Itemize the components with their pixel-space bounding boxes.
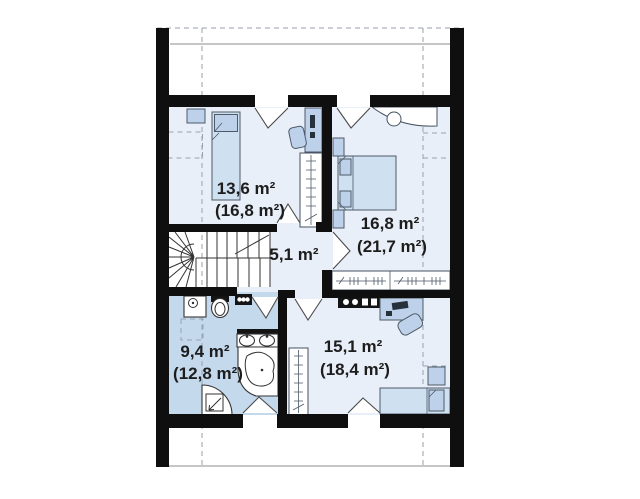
wall-stairs-bathroom [156, 287, 237, 296]
desk [305, 108, 322, 152]
double-bed [338, 156, 396, 210]
floor-plan-page: 13,6 m² (16,8 m²) 16,8 m² (21,7 m²) 5,1 … [0, 0, 640, 499]
wardrobe [332, 271, 450, 290]
room-gross-area-label: (12,8 m²) [173, 364, 243, 384]
wall-bottom-a [156, 414, 243, 428]
wall-middle-upper [322, 107, 332, 232]
wall-top-c [370, 95, 464, 107]
radiator [235, 294, 252, 305]
corner-bathtub [238, 347, 278, 396]
wardrobe [300, 153, 322, 227]
wall-top-b [288, 95, 337, 107]
wall-bottom-c [380, 414, 464, 428]
room-area-label: 5,1 m² [269, 245, 318, 265]
toilet [211, 296, 229, 318]
wall-top-a [156, 95, 255, 107]
wall-bathroom-right [278, 290, 287, 415]
desk-chair [387, 112, 401, 126]
desk-monitor [310, 115, 315, 128]
pillow [340, 191, 351, 207]
floor-plan-drawing [0, 0, 640, 499]
room-area-label: 9,4 m² [180, 342, 229, 362]
desk-item [386, 311, 392, 316]
desk-item [310, 132, 315, 138]
shelf [187, 109, 205, 123]
room-area-label: 16,8 m² [361, 214, 420, 234]
nightstand [428, 367, 445, 385]
wardrobe [289, 348, 308, 415]
pillow [429, 390, 444, 411]
room-area-label: 13,6 m² [217, 179, 276, 199]
room-gross-area-label: (21,7 m²) [357, 237, 427, 257]
room-gross-area-label: (16,8 m²) [215, 201, 285, 221]
wall-left [156, 28, 169, 467]
single-bed [380, 388, 450, 414]
room-area-label: 15,1 m² [324, 337, 383, 357]
pillow [340, 159, 351, 175]
stairwell-floor [169, 232, 270, 287]
pillow [215, 115, 238, 132]
washing-machine [184, 296, 206, 317]
wall-bottom-b [277, 414, 348, 428]
wall-bedroom-hall [156, 224, 277, 232]
nightstand [333, 138, 344, 156]
room-gross-area-label: (18,4 m²) [320, 360, 390, 380]
double-sink [237, 329, 278, 347]
wall-hall-room-b [322, 290, 450, 298]
wall-right [450, 28, 464, 467]
nightstand [333, 210, 344, 228]
